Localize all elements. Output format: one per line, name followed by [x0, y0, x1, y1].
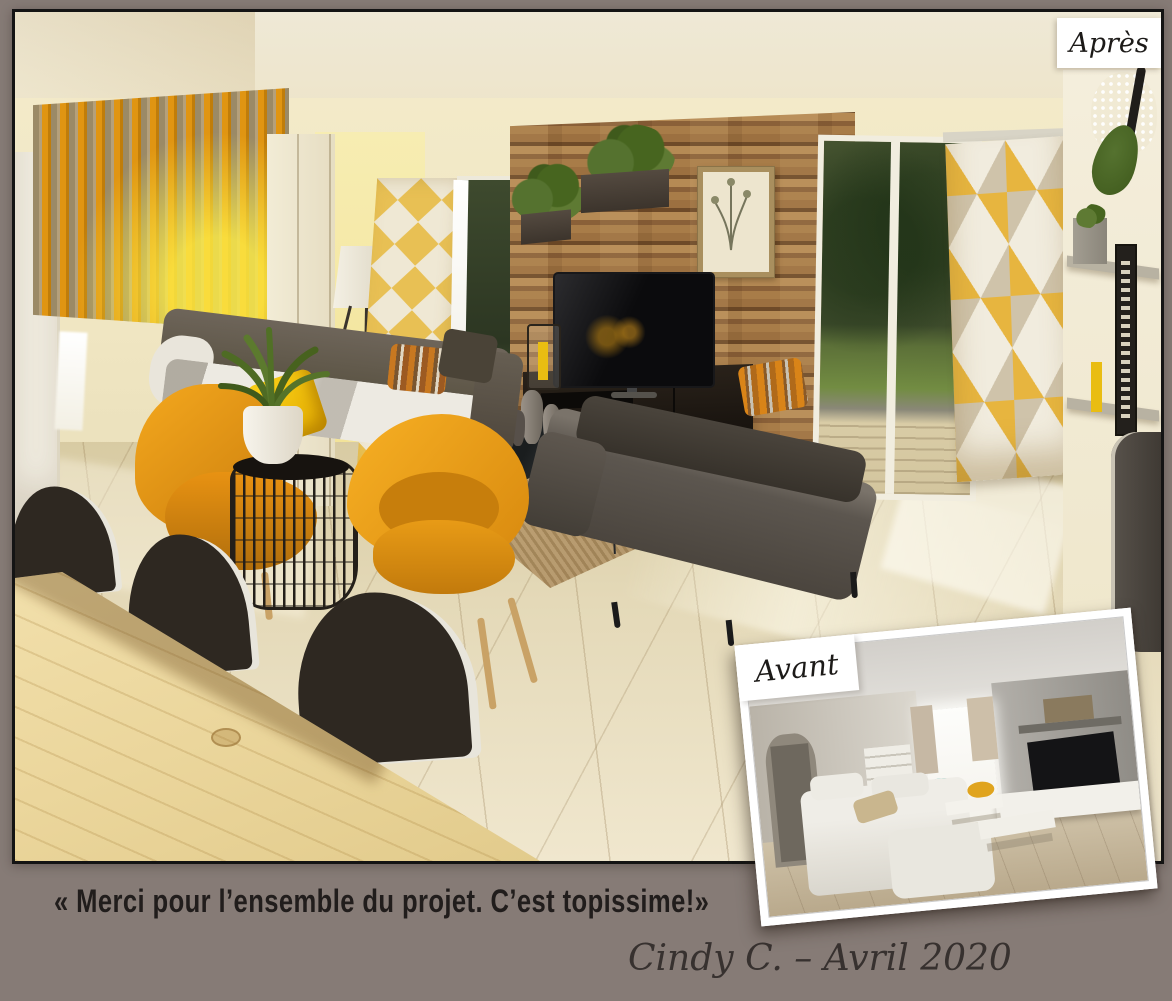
- before-crate: [1043, 695, 1094, 723]
- wall-planter: [521, 209, 571, 244]
- white-plant-pot: [243, 406, 303, 464]
- yellow-candle-shelf: [1091, 362, 1102, 412]
- botanical-print-art: [703, 172, 759, 260]
- before-badge: Avant: [734, 634, 859, 701]
- window-light-slit: [54, 331, 87, 430]
- candle-lantern: [527, 324, 561, 390]
- testimonial-page: { "page": { "background_color": "#867B76…: [0, 0, 1172, 1001]
- succulent-plant: [1073, 204, 1107, 228]
- door-mullion: [885, 142, 900, 494]
- dark-pillow: [437, 328, 499, 385]
- testimonial-signature: Cindy C. – Avril 2020: [628, 938, 1012, 979]
- yellow-candle: [538, 342, 548, 380]
- after-badge: Après: [1057, 18, 1161, 68]
- armchair-front: [373, 520, 515, 594]
- wood-knot: [211, 728, 241, 747]
- tv-screen: [555, 274, 713, 386]
- wall-planter: [581, 169, 669, 213]
- botanical-print-frame: [698, 167, 774, 277]
- testimonial-quote: « Merci pour l’ensemble du projet. C’est…: [54, 883, 709, 920]
- geometric-curtain-right: [945, 136, 1077, 482]
- wood-slat-screen: [33, 88, 289, 332]
- shelf-artframe: [1115, 244, 1137, 436]
- before-photo: Avant: [734, 608, 1157, 927]
